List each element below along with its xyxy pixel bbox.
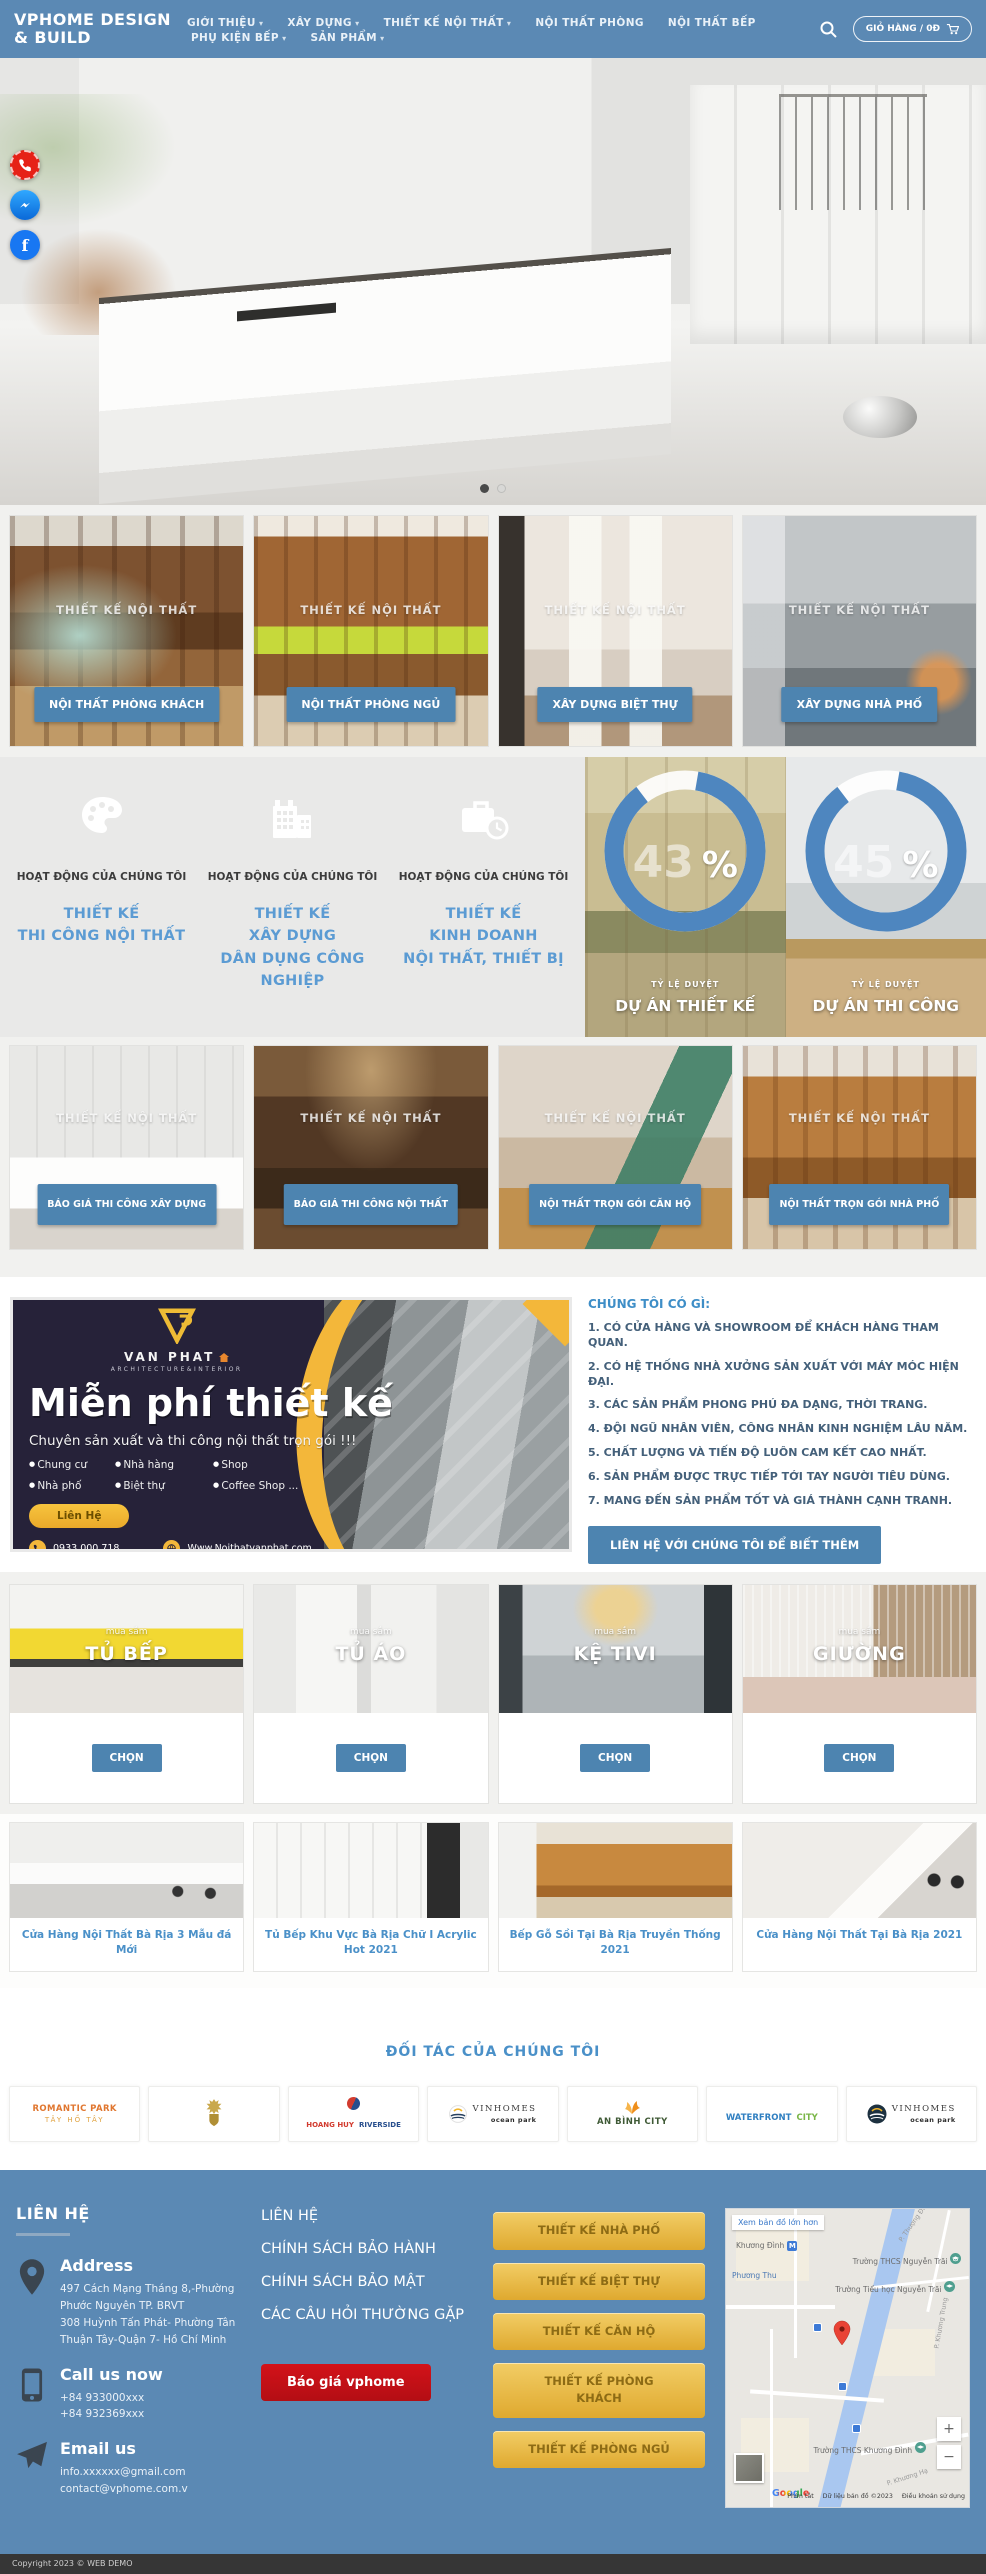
van-phat-banner[interactable]: VAN PHAT ARCHITECTURE&INTERIOR Miễn phí … bbox=[10, 1297, 572, 1552]
facebook-icon: f bbox=[22, 236, 29, 255]
map-road bbox=[770, 2329, 773, 2508]
footer-links-column: LIÊN HỆ CHÍNH SÁCH BẢO HÀNH CHÍNH SÁCH B… bbox=[261, 2204, 473, 2513]
partner-an-binh-city: AN BÌNH CITY bbox=[567, 2086, 698, 2142]
product-card-ke-tivi[interactable]: mua sắm KỆ TIVI CHỌN bbox=[498, 1584, 733, 1804]
article-title[interactable]: Tủ Bếp Khu Vực Bà Rịa Chữ I Acrylic Hot … bbox=[254, 1918, 487, 1971]
category-card-villa[interactable]: THIẾT KẾ NỘI THẤT XÂY DỰNG BIỆT THỰ bbox=[498, 515, 733, 747]
stat-value: 43 % bbox=[585, 837, 786, 888]
product-image: mua sắm TỦ BẾP bbox=[10, 1585, 243, 1713]
category-card-bedroom[interactable]: THIẾT KẾ NỘI THẤT NỘI THẤT PHÒNG NGỦ bbox=[253, 515, 488, 747]
product-body: CHỌN bbox=[499, 1713, 732, 1803]
nav-phu-kien-bep[interactable]: PHỤ KIỆN BẾP bbox=[191, 32, 287, 44]
partner-gold-crest bbox=[148, 2086, 279, 2142]
banner-bullet-list: Chung cư Nhà hàng Shop Nhà phố Biệt thự … bbox=[29, 1459, 324, 1492]
header-actions: GIỎ HÀNG / 0Đ bbox=[819, 16, 972, 42]
banner-brand: VAN PHAT bbox=[124, 1350, 215, 1364]
email-title: Email us bbox=[60, 2439, 188, 2458]
stat-unit: % bbox=[702, 845, 738, 886]
activity-design: HOẠT ĐỘNG CỦA CHÚNG TÔI THIẾT KẾ THI CÔN… bbox=[6, 783, 197, 1037]
footer-link-bao-mat[interactable]: CHÍNH SÁCH BẢO MẬT bbox=[261, 2274, 473, 2290]
keyboard-shortcuts-link[interactable]: Phím tắt bbox=[787, 2493, 813, 2500]
noi-that-phong-ngu-button[interactable]: NỘI THẤT PHÒNG NGỦ bbox=[286, 687, 455, 722]
article-card[interactable]: Tủ Bếp Khu Vực Bà Rịa Chữ I Acrylic Hot … bbox=[253, 1822, 488, 1972]
partner-romantic-park: ROMANTIC PARK TÂY HỒ TÂY bbox=[9, 2086, 140, 2142]
stat-rate-label: TỶ LỆ DUYỆT bbox=[786, 980, 986, 989]
product-name: KỆ TIVI bbox=[499, 1643, 732, 1665]
house-icon bbox=[219, 1353, 229, 1362]
partner-waterfront-city: WATERFRONT CITY bbox=[706, 2086, 837, 2142]
product-name: TỦ BẾP bbox=[10, 1643, 243, 1665]
site-logo[interactable]: VPHOME DESIGN & BUILD bbox=[14, 11, 171, 48]
banner-website: Www.Noithatvanphat.com bbox=[163, 1540, 311, 1552]
banner-subtitle: Chuyên sản xuất và thi công nội thất trọ… bbox=[29, 1433, 324, 1449]
nav-noi-that-bep[interactable]: NỘI THẤT BẾP bbox=[668, 17, 756, 29]
bao-gia-thi-cong-xay-dung-button[interactable]: BÁO GIÁ THI CÔNG XÂY DỰNG bbox=[37, 1184, 216, 1225]
map-street-label: P. Khương Trung bbox=[933, 2297, 950, 2349]
choose-button[interactable]: CHỌN bbox=[824, 1744, 894, 1772]
lien-he-cta-button[interactable]: Liên Hệ bbox=[29, 1504, 129, 1528]
article-image bbox=[743, 1823, 976, 1918]
nav-thiet-ke-noi-that[interactable]: THIẾT KẾ NỘI THẤT bbox=[384, 17, 512, 29]
carousel-dots bbox=[0, 484, 986, 493]
transit-icon[interactable] bbox=[813, 2323, 822, 2332]
activity-line[interactable]: KINH DOANH bbox=[398, 925, 569, 947]
footer-email-block: Email us info.xxxxxx@gmail.com contact@v… bbox=[16, 2439, 241, 2498]
activity-line[interactable]: THIẾT KẾ bbox=[398, 903, 569, 925]
project-stats: 43 % TỶ LỆ DUYỆT DỰ ÁN THIẾT KẾ 45 % TỶ … bbox=[585, 757, 986, 1037]
map-road bbox=[794, 2209, 797, 2358]
map-data-label: Dữ liệu bản đồ ©2023 bbox=[823, 2493, 893, 2500]
partner-name: AN BÌNH CITY bbox=[597, 2117, 668, 2127]
email-address[interactable]: contact@vphome.com.v bbox=[60, 2481, 188, 2498]
call-title: Call us now bbox=[60, 2365, 163, 2384]
footer-contact-column: LIÊN HỆ Address 497 Cách Mạng Tháng 8,-P… bbox=[16, 2204, 241, 2513]
carousel-dot-1[interactable] bbox=[480, 484, 489, 493]
article-card[interactable]: Cửa Hàng Nội Thất Bà Rịa 3 Mẫu đá Mới bbox=[9, 1822, 244, 1972]
card-watermark: THIẾT KẾ NỘI THẤT bbox=[499, 603, 732, 617]
stat-rate-label: TỶ LỆ DUYỆT bbox=[585, 980, 786, 989]
partner-sub: ocean park bbox=[491, 2116, 537, 2124]
banner-website-url: Www.Noithatvanphat.com bbox=[187, 1543, 311, 1552]
thiet-ke-nha-pho-button[interactable]: THIẾT KẾ NHÀ PHỐ bbox=[493, 2212, 705, 2249]
nav-row-1: GIỚI THIỆU XÂY DỰNG THIẾT KẾ NỘI THẤT NỘ… bbox=[187, 17, 803, 29]
terms-link[interactable]: Điều khoản sử dụng bbox=[902, 2493, 965, 2500]
product-body: CHỌN bbox=[10, 1713, 243, 1803]
phone-icon bbox=[29, 1540, 46, 1552]
partners-heading: ĐỐI TÁC CỦA CHÚNG TÔI bbox=[9, 2044, 977, 2060]
product-image: mua sắm KỆ TIVI bbox=[499, 1585, 732, 1713]
about-item: 3. CÁC SẢN PHẨM PHONG PHÚ ĐA DẠNG, THỜI … bbox=[588, 1398, 972, 1413]
about-item: 1. CÓ CỬA HÀNG VÀ SHOWROOM ĐỂ KHÁCH HÀNG… bbox=[588, 1321, 972, 1351]
article-card[interactable]: Bếp Gỗ Sồi Tại Bà Rịa Truyền Thống 2021 bbox=[498, 1822, 733, 1972]
bullet-item: Nhà phố bbox=[29, 1480, 115, 1492]
partner-name: WATERFRONT bbox=[726, 2113, 792, 2123]
map-marker[interactable] bbox=[833, 2320, 851, 2350]
phone-contact-button[interactable] bbox=[10, 150, 40, 180]
about-item: 7. MANG ĐẾN SẢN PHẨM TỐT VÀ GIÁ THÀNH CẠ… bbox=[588, 1494, 972, 1509]
map-school-label: Trường THCS Khương Đình bbox=[813, 2442, 925, 2455]
package-card-apartment[interactable]: THIẾT KẾ NỘI THẤT NỘI THẤT TRỌN GÓI CĂN … bbox=[498, 1045, 733, 1250]
copyright-bar: Copyright 2023 © WEB DEMO bbox=[0, 2554, 986, 2574]
map-school-label: Trường Tiểu học Nguyễn Trãi bbox=[835, 2281, 955, 2294]
school-label-text: Trường THCS Khương Đình bbox=[813, 2446, 912, 2455]
school-icon bbox=[950, 2253, 961, 2264]
briefcase-clock-icon bbox=[398, 783, 569, 855]
activity-line[interactable]: XÂY DỰNG bbox=[207, 925, 378, 947]
logo-line1: VPHOME DESIGN bbox=[14, 11, 171, 29]
thiet-ke-biet-thu-button[interactable]: THIẾT KẾ BIỆT THỰ bbox=[493, 2263, 705, 2300]
quote-card-construction[interactable]: THIẾT KẾ NỘI THẤT BÁO GIÁ THI CÔNG XÂY D… bbox=[9, 1045, 244, 1250]
footer-call-block: Call us now +84 933000xxx +84 932369xxx bbox=[16, 2365, 241, 2424]
product-tag: mua sắm bbox=[10, 1627, 243, 1637]
activities-section: HOẠT ĐỘNG CỦA CHÚNG TÔI THIẾT KẾ THI CÔN… bbox=[0, 757, 986, 1037]
activity-line[interactable]: DÂN DỤNG CÔNG NGHIỆP bbox=[207, 948, 378, 993]
main-nav: GIỚI THIỆU XÂY DỰNG THIẾT KẾ NỘI THẤT NỘ… bbox=[187, 15, 803, 44]
phone-icon bbox=[18, 158, 32, 172]
article-image bbox=[254, 1823, 487, 1918]
school-label-text: Trường Tiểu học Nguyễn Trãi bbox=[835, 2285, 941, 2294]
article-image bbox=[10, 1823, 243, 1918]
send-plane-icon bbox=[16, 2439, 48, 2498]
footer-link-faq[interactable]: CÁC CÂU HỎI THƯỜNG GẶP bbox=[261, 2307, 473, 2323]
product-name: TỦ ÁO bbox=[254, 1643, 487, 1665]
bullet-item: Chung cư bbox=[29, 1459, 115, 1471]
stat-value: 45 % bbox=[786, 837, 986, 888]
product-body: CHỌN bbox=[254, 1713, 487, 1803]
noi-that-phong-khach-button[interactable]: NỘI THẤT PHÒNG KHÁCH bbox=[34, 687, 219, 722]
map-street-label: P. Khương Hạ bbox=[886, 2467, 929, 2488]
activity-line[interactable]: THIẾT KẾ bbox=[207, 903, 378, 925]
card-watermark: THIẾT KẾ NỘI THẤT bbox=[499, 1111, 732, 1125]
nav-gioi-thieu[interactable]: GIỚI THIỆU bbox=[187, 17, 263, 29]
logo-line2: & BUILD bbox=[14, 29, 171, 47]
phone-number[interactable]: +84 932369xxx bbox=[60, 2406, 163, 2423]
footer-map-column: Xem bản đồ lớn hơn Khương ĐìnhM Phương T… bbox=[725, 2204, 970, 2513]
product-image: mua sắm TỦ ÁO bbox=[254, 1585, 487, 1713]
banner-content: VAN PHAT ARCHITECTURE&INTERIOR Miễn phí … bbox=[13, 1300, 324, 1552]
activity-columns: HOẠT ĐỘNG CỦA CHÚNG TÔI THIẾT KẾ THI CÔN… bbox=[0, 757, 585, 1037]
footer-address-block: Address 497 Cách Mạng Tháng 8,-Phường Ph… bbox=[16, 2256, 241, 2348]
banner-phone-number: 0933.000.718 bbox=[53, 1543, 119, 1552]
article-card[interactable]: Cửa Hàng Nội Thất Tại Bà Rịa 2021 bbox=[742, 1822, 977, 1972]
globe-icon bbox=[163, 1540, 180, 1552]
product-body: CHỌN bbox=[743, 1713, 976, 1803]
about-us-block: CHÚNG TÔI CÓ GÌ: 1. CÓ CỬA HÀNG VÀ SHOWR… bbox=[588, 1297, 976, 1552]
school-icon bbox=[944, 2281, 955, 2292]
product-image: mua sắm GIƯỜNG bbox=[743, 1585, 976, 1713]
partner-sub: CITY bbox=[796, 2113, 817, 2123]
cart-icon bbox=[946, 23, 959, 35]
article-title[interactable]: Bếp Gỗ Sồi Tại Bà Rịa Truyền Thống 2021 bbox=[499, 1918, 732, 1971]
product-cards: mua sắm TỦ BẾP CHỌN mua sắm TỦ ÁO CHỌN m… bbox=[0, 1572, 986, 1814]
product-card-tu-bep[interactable]: mua sắm TỦ BẾP CHỌN bbox=[9, 1584, 244, 1804]
zoom-out-button[interactable]: − bbox=[937, 2445, 961, 2469]
footer-link-bao-hanh[interactable]: CHÍNH SÁCH BẢO HÀNH bbox=[261, 2241, 473, 2257]
mobile-phone-icon bbox=[16, 2365, 48, 2424]
article-title[interactable]: Cửa Hàng Nội Thất Bà Rịa 3 Mẫu đá Mới bbox=[10, 1918, 243, 1971]
stat-design-projects: 43 % TỶ LỆ DUYỆT DỰ ÁN THIẾT KẾ bbox=[585, 757, 786, 1037]
category-card-living[interactable]: THIẾT KẾ NỘI THẤT NỘI THẤT PHÒNG KHÁCH bbox=[9, 515, 244, 747]
messenger-icon bbox=[17, 197, 33, 213]
thiet-ke-phong-ngu-button[interactable]: THIẾT KẾ PHÒNG NGỦ bbox=[493, 2431, 705, 2468]
banner-phone: 0933.000.718 bbox=[29, 1540, 119, 1552]
transit-icon[interactable] bbox=[838, 2382, 847, 2391]
hero-steel-bowl bbox=[843, 396, 917, 438]
copyright-text: Copyright 2023 © WEB DEMO bbox=[12, 2559, 133, 2568]
nav-noi-that-phong[interactable]: NỘI THẤT PHÒNG bbox=[535, 17, 644, 29]
partner-name: VINHOMES bbox=[892, 2104, 956, 2114]
cart-label: GIỎ HÀNG / 0Đ bbox=[866, 24, 940, 34]
facebook-button[interactable]: f bbox=[10, 230, 40, 260]
address-line: 497 Cách Mạng Tháng 8,-Phường Phước Nguy… bbox=[60, 2281, 241, 2315]
nav-san-pham[interactable]: SẢN PHẨM bbox=[311, 32, 385, 44]
bullet-item: Shop bbox=[213, 1459, 343, 1471]
package-card-townhouse[interactable]: THIẾT KẾ NỘI THẤT NỘI THẤT TRỌN GÓI NHÀ … bbox=[742, 1045, 977, 1250]
card-watermark: THIẾT KẾ NỘI THẤT bbox=[743, 603, 976, 617]
choose-button[interactable]: CHỌN bbox=[580, 1744, 650, 1772]
product-card-giuong[interactable]: mua sắm GIƯỜNG CHỌN bbox=[742, 1584, 977, 1804]
partner-name: VINHOMES bbox=[472, 2104, 536, 2114]
satellite-toggle[interactable] bbox=[734, 2453, 764, 2483]
footer-design-buttons-column: THIẾT KẾ NHÀ PHỐ THIẾT KẾ BIỆT THỰ THIẾT… bbox=[493, 2204, 705, 2513]
header: VPHOME DESIGN & BUILD GIỚI THIỆU XÂY DỰN… bbox=[0, 0, 986, 58]
activity-line[interactable]: THI CÔNG NỘI THẤT bbox=[16, 925, 187, 947]
contact-more-button[interactable]: LIÊN HỆ VỚI CHÚNG TÔI ĐỂ BIẾT THÊM bbox=[588, 1526, 881, 1564]
about-item: 5. CHẤT LƯỢNG VÀ TIẾN ĐỘ LUÔN CAM KẾT CA… bbox=[588, 1446, 972, 1461]
footer-link-lien-he[interactable]: LIÊN HỆ bbox=[261, 2208, 473, 2224]
stat-number: 45 bbox=[833, 837, 894, 888]
category-card-townhouse[interactable]: THIẾT KẾ NỘI THẤT XÂY DỰNG NHÀ PHỐ bbox=[742, 515, 977, 747]
school-icon bbox=[915, 2442, 926, 2453]
activity-line[interactable]: NỘI THẤT, THIẾT BỊ bbox=[398, 948, 569, 970]
card-watermark: THIẾT KẾ NỘI THẤT bbox=[254, 1111, 487, 1125]
zoom-in-button[interactable]: + bbox=[937, 2417, 961, 2441]
noi-that-tron-goi-can-ho-button[interactable]: NỘI THẤT TRỌN GÓI CĂN HỘ bbox=[529, 1184, 701, 1225]
card-watermark: THIẾT KẾ NỘI THẤT bbox=[10, 1111, 243, 1125]
partner-sub: ocean park bbox=[910, 2116, 956, 2124]
bullet-item: Coffee Shop ... bbox=[213, 1480, 343, 1492]
article-image bbox=[499, 1823, 732, 1918]
card-watermark: THIẾT KẾ NỘI THẤT bbox=[743, 1111, 976, 1125]
bao-gia-vphome-button[interactable]: Báo giá vphome bbox=[261, 2364, 431, 2401]
about-heading: CHÚNG TÔI CÓ GÌ: bbox=[588, 1297, 972, 1311]
stat-build-projects: 45 % TỶ LỆ DUYỆT DỰ ÁN THI CÔNG bbox=[786, 757, 986, 1037]
wave-circle-dark-icon bbox=[867, 2104, 887, 2124]
flower-icon bbox=[624, 2101, 640, 2115]
partner-sub: TÂY HỒ TÂY bbox=[45, 2116, 105, 2124]
category-cards-row1: THIẾT KẾ NỘI THẤT NỘI THẤT PHÒNG KHÁCH T… bbox=[0, 505, 986, 757]
address-title: Address bbox=[60, 2256, 241, 2275]
partner-name: ROMANTIC PARK bbox=[32, 2104, 116, 2114]
thiet-ke-phong-khach-button[interactable]: THIẾT KẾ PHÒNG KHÁCH bbox=[493, 2363, 705, 2418]
partner-hoang-huy: HOANG HUY RIVERSIDE bbox=[288, 2086, 419, 2142]
activity-title: HOẠT ĐỘNG CỦA CHÚNG TÔI bbox=[207, 871, 378, 883]
stat-name: DỰ ÁN THIẾT KẾ bbox=[585, 997, 786, 1015]
building-icon bbox=[207, 783, 378, 855]
product-tag: mua sắm bbox=[499, 1627, 732, 1637]
view-larger-map-link[interactable]: Xem bản đồ lớn hơn bbox=[732, 2215, 824, 2230]
product-tag: mua sắm bbox=[743, 1627, 976, 1637]
bullet-item: Nhà hàng bbox=[115, 1459, 213, 1471]
map-school-label: Trường THCS Nguyễn Trãi bbox=[853, 2253, 961, 2266]
choose-button[interactable]: CHỌN bbox=[92, 1744, 162, 1772]
map-attribution: Phím tắt Dữ liệu bản đồ ©2023 Điều khoản… bbox=[787, 2493, 965, 2500]
xay-dung-biet-thu-button[interactable]: XÂY DỰNG BIỆT THỰ bbox=[537, 687, 692, 722]
bullet-item: Biệt thự bbox=[115, 1480, 213, 1492]
map-pin-icon bbox=[16, 2256, 48, 2348]
transit-icon[interactable] bbox=[852, 2424, 861, 2433]
footer: LIÊN HỆ Address 497 Cách Mạng Tháng 8,-P… bbox=[0, 2170, 986, 2553]
partners-section: ĐỐI TÁC CỦA CHÚNG TÔI ROMANTIC PARK TÂY … bbox=[0, 1988, 986, 2170]
palette-icon bbox=[16, 783, 187, 855]
banner-contact-row: 0933.000.718 Www.Noithatvanphat.com bbox=[29, 1540, 324, 1552]
wave-circle-icon bbox=[449, 2105, 467, 2123]
bao-gia-thi-cong-noi-that-button[interactable]: BÁO GIÁ THI CÔNG NỘI THẤT bbox=[284, 1184, 458, 1225]
floating-social-buttons: f bbox=[10, 150, 40, 260]
address-line: 308 Huỳnh Tấn Phát- Phường Tân Thuận Tây… bbox=[60, 2315, 241, 2349]
google-map[interactable]: Xem bản đồ lớn hơn Khương ĐìnhM Phương T… bbox=[725, 2208, 970, 2508]
quote-card-interior[interactable]: THIẾT KẾ NỘI THẤT BÁO GIÁ THI CÔNG NỘI T… bbox=[253, 1045, 488, 1250]
heading-underline bbox=[16, 2233, 70, 2236]
partners-row: ROMANTIC PARK TÂY HỒ TÂY HOANG HUY RIVER… bbox=[9, 2086, 977, 2142]
cart-button[interactable]: GIỎ HÀNG / 0Đ bbox=[853, 16, 972, 42]
category-cards-row2: THIẾT KẾ NỘI THẤT BÁO GIÁ THI CÔNG XÂY D… bbox=[0, 1037, 986, 1277]
stat-unit: % bbox=[902, 845, 938, 886]
thiet-ke-can-ho-button[interactable]: THIẾT KẾ CĂN HỘ bbox=[493, 2313, 705, 2350]
about-item: 6. SẢN PHẨM ĐƯỢC TRỰC TIẾP TỚI TAY NGƯỜI… bbox=[588, 1470, 972, 1485]
activity-title: HOẠT ĐỘNG CỦA CHÚNG TÔI bbox=[398, 871, 569, 883]
about-item: 4. ĐỘI NGŨ NHÂN VIÊN, CÔNG NHÂN KINH NGH… bbox=[588, 1422, 972, 1437]
hero-utensil-rack bbox=[779, 94, 927, 210]
messenger-button[interactable] bbox=[10, 190, 40, 220]
school-label-text: Trường THCS Nguyễn Trãi bbox=[853, 2257, 948, 2266]
card-watermark: THIẾT KẾ NỘI THẤT bbox=[10, 603, 243, 617]
stat-number: 43 bbox=[633, 837, 694, 888]
hoang-huy-icon bbox=[345, 2095, 362, 2112]
map-area-label: Phương Thu bbox=[732, 2271, 777, 2280]
product-name: GIƯỜNG bbox=[743, 1643, 976, 1665]
van-phat-logo: VAN PHAT ARCHITECTURE&INTERIOR bbox=[72, 1308, 282, 1373]
hero-carousel[interactable]: f bbox=[0, 58, 986, 505]
noi-that-tron-goi-nha-pho-button[interactable]: NỘI THẤT TRỌN GÓI NHÀ PHỐ bbox=[769, 1184, 949, 1225]
article-cards: Cửa Hàng Nội Thất Bà Rịa 3 Mẫu đá Mới Tủ… bbox=[0, 1814, 986, 1988]
activity-construction: HOẠT ĐỘNG CỦA CHÚNG TÔI THIẾT KẾ XÂY DỰN… bbox=[197, 783, 388, 1037]
crest-icon bbox=[201, 2097, 227, 2131]
map-zoom-controls: + − bbox=[937, 2417, 961, 2473]
email-address[interactable]: info.xxxxxx@gmail.com bbox=[60, 2464, 188, 2481]
product-tag: mua sắm bbox=[254, 1627, 487, 1637]
about-item: 2. CÓ HỆ THỐNG NHÀ XƯỞNG SẢN XUẤT VỚI MÁ… bbox=[588, 1360, 972, 1390]
footer-contact-heading: LIÊN HỆ bbox=[16, 2204, 241, 2223]
nav-xay-dung[interactable]: XÂY DỰNG bbox=[287, 17, 359, 29]
promo-section: VAN PHAT ARCHITECTURE&INTERIOR Miễn phí … bbox=[0, 1277, 986, 1572]
choose-button[interactable]: CHỌN bbox=[336, 1744, 406, 1772]
banner-brand-sub: ARCHITECTURE&INTERIOR bbox=[72, 1366, 282, 1373]
search-icon[interactable] bbox=[819, 20, 837, 38]
product-card-tu-ao[interactable]: mua sắm TỦ ÁO CHỌN bbox=[253, 1584, 488, 1804]
card-watermark: THIẾT KẾ NỘI THẤT bbox=[254, 603, 487, 617]
carousel-dot-2[interactable] bbox=[497, 484, 506, 493]
partner-vinhomes-ocean-park: VINHOMES ocean park bbox=[427, 2086, 558, 2142]
nav-row-2: PHỤ KIỆN BẾP SẢN PHẨM bbox=[187, 32, 803, 44]
partner-vinhomes-ocean-park-2: VINHOMES ocean park bbox=[846, 2086, 977, 2142]
area-label-text: Khương Đình bbox=[736, 2241, 784, 2250]
partner-sub: RIVERSIDE bbox=[359, 2121, 401, 2129]
partner-name: HOANG HUY bbox=[306, 2121, 354, 2129]
phone-number[interactable]: +84 933000xxx bbox=[60, 2390, 163, 2407]
metro-icon: M bbox=[787, 2241, 797, 2251]
xay-dung-nha-pho-button[interactable]: XÂY DỰNG NHÀ PHỐ bbox=[782, 687, 938, 722]
vp-monogram-icon bbox=[156, 1308, 198, 1344]
activity-business: HOẠT ĐỘNG CỦA CHÚNG TÔI THIẾT KẾ KINH DO… bbox=[388, 783, 579, 1037]
article-title[interactable]: Cửa Hàng Nội Thất Tại Bà Rịa 2021 bbox=[743, 1918, 976, 1957]
activity-line[interactable]: THIẾT KẾ bbox=[16, 903, 187, 925]
map-area-label: Khương ĐìnhM bbox=[736, 2241, 797, 2251]
stat-name: DỰ ÁN THI CÔNG bbox=[786, 997, 986, 1015]
activity-title: HOẠT ĐỘNG CỦA CHÚNG TÔI bbox=[16, 871, 187, 883]
map-road bbox=[726, 2305, 835, 2309]
banner-title: Miễn phí thiết kế bbox=[29, 1381, 324, 1425]
